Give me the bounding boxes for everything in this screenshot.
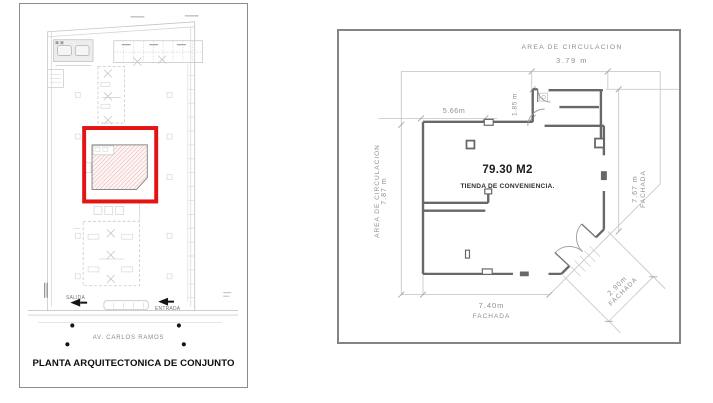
area-label: 79.30 M2 bbox=[435, 164, 580, 177]
screenshot-stage: SALIDA ENTRADA AV. CARLOS RAMOS PLANTA A… bbox=[0, 0, 713, 403]
wall-details bbox=[482, 119, 604, 276]
bottom-facade-label: FACHADA bbox=[429, 313, 554, 320]
right-facade-label: FACHADA bbox=[640, 144, 647, 234]
entrance-hatch bbox=[570, 246, 600, 276]
micro-labels bbox=[131, 16, 199, 17]
floor-plan-panel: AREA DE CIRCULACION 3.79 m AREA DE CIRCU… bbox=[337, 29, 681, 344]
upper-building-grid bbox=[98, 67, 125, 124]
top-circulation-label: AREA DE CIRCULACION bbox=[492, 44, 652, 52]
stalls-below-building bbox=[94, 201, 139, 221]
interior-width-dimension: 5.66m bbox=[424, 107, 484, 115]
left-dimension-block: AREA DE CIRCULACION 7.87 m bbox=[374, 121, 396, 261]
interior-height-dimension: 1.85 m bbox=[512, 82, 521, 126]
right-dimension: 7.67 m bbox=[632, 144, 640, 234]
door-swings bbox=[528, 89, 596, 266]
site-plan-title: PLANTA ARQUITECTONICA DE CONJUNTO bbox=[23, 358, 244, 369]
parking-strip bbox=[114, 41, 203, 63]
entrance-arrow-icon bbox=[158, 298, 174, 306]
site-plan-drawing bbox=[20, 4, 246, 386]
highlighted-building-footprint bbox=[85, 145, 147, 190]
street-canopy bbox=[104, 301, 148, 310]
columns bbox=[466, 141, 607, 258]
site-plan-panel: SALIDA ENTRADA AV. CARLOS RAMOS PLANTA A… bbox=[19, 3, 248, 388]
cars-area bbox=[54, 40, 93, 66]
left-circulation-label: AREA DE CIRCULACION bbox=[374, 121, 381, 261]
store-name-label: TIENDA DE CONVENIENCIA. bbox=[435, 183, 580, 191]
left-dimension: 7.87 m bbox=[381, 121, 389, 261]
lower-building-grid bbox=[73, 221, 139, 285]
entrance-label: ENTRADA bbox=[155, 307, 180, 313]
exit-label: SALIDA bbox=[66, 296, 85, 302]
top-dimension: 3.79 m bbox=[492, 57, 652, 66]
side-stairs bbox=[48, 69, 64, 87]
right-dimension-block: 7.67 m FACHADA bbox=[632, 144, 654, 234]
right-parking-ticks bbox=[188, 64, 195, 302]
bottom-dimension: 7.40m bbox=[429, 302, 554, 311]
street-label: AV. CARLOS RAMOS bbox=[76, 335, 181, 342]
